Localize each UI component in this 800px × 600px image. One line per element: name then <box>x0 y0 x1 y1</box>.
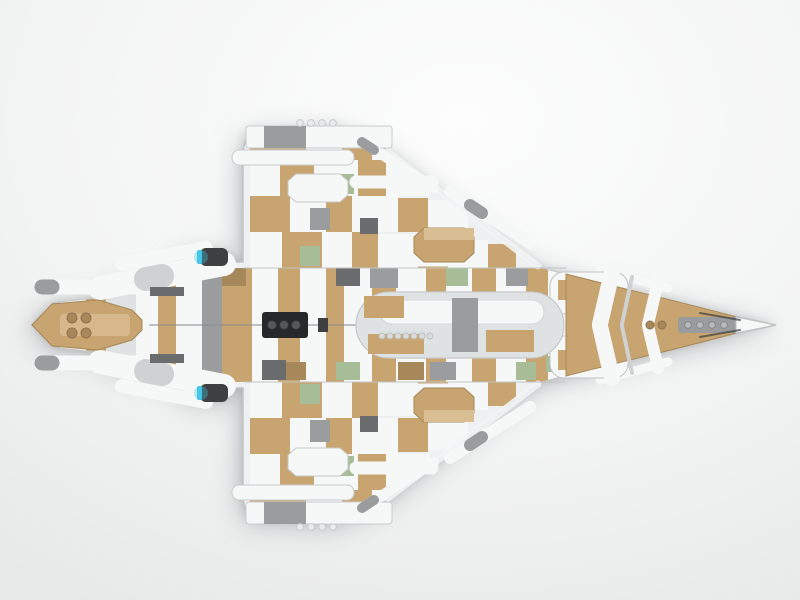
rect <box>516 362 536 380</box>
machinery-cylinders <box>268 321 301 330</box>
vent-strip <box>150 287 184 296</box>
rect <box>322 382 352 418</box>
trailing-tan-pod-top <box>424 228 474 240</box>
wing-hex-pod <box>288 448 348 476</box>
rect <box>370 268 398 288</box>
spine-gray-segment <box>264 126 306 148</box>
rect <box>430 362 456 380</box>
central-gray <box>452 298 478 352</box>
rect <box>300 384 320 404</box>
rect <box>322 232 352 268</box>
thruster-glow <box>197 386 202 400</box>
rect <box>250 382 282 418</box>
machinery-small <box>318 318 328 332</box>
rect <box>506 268 528 286</box>
rect <box>360 218 378 234</box>
rect <box>398 362 424 380</box>
spine-bar-2 <box>232 150 354 165</box>
vent-strip <box>150 354 184 363</box>
central-tan-3 <box>486 330 534 352</box>
rect <box>352 232 378 268</box>
leading-boom-b-band <box>470 437 482 445</box>
spaceship-top-view-render <box>0 0 800 600</box>
rect <box>262 360 286 380</box>
rect <box>336 268 360 286</box>
leading-boom-b-band <box>470 205 482 213</box>
render-canvas <box>0 0 800 600</box>
rect <box>336 362 360 380</box>
thruster-glow <box>197 250 202 264</box>
rect <box>250 232 282 268</box>
leading-boom-a-cap <box>362 500 374 508</box>
rect <box>310 208 330 230</box>
rect <box>398 418 428 452</box>
engine-pod-band <box>146 371 162 374</box>
wing-hex-pod <box>288 174 348 202</box>
rect <box>300 246 320 266</box>
rect <box>446 268 468 286</box>
rect <box>352 382 378 418</box>
rect <box>360 416 378 432</box>
spine-bar-2 <box>232 485 354 500</box>
rect <box>286 362 306 380</box>
rect <box>398 198 428 232</box>
rect <box>250 196 290 232</box>
engine-pod-band <box>146 276 162 279</box>
rect <box>310 420 330 442</box>
central-tan-1 <box>364 296 404 318</box>
leading-boom-a-cap <box>362 142 374 150</box>
rect <box>250 418 290 454</box>
trailing-tan-pod-top <box>424 410 474 422</box>
spine-gray-segment <box>264 502 306 524</box>
